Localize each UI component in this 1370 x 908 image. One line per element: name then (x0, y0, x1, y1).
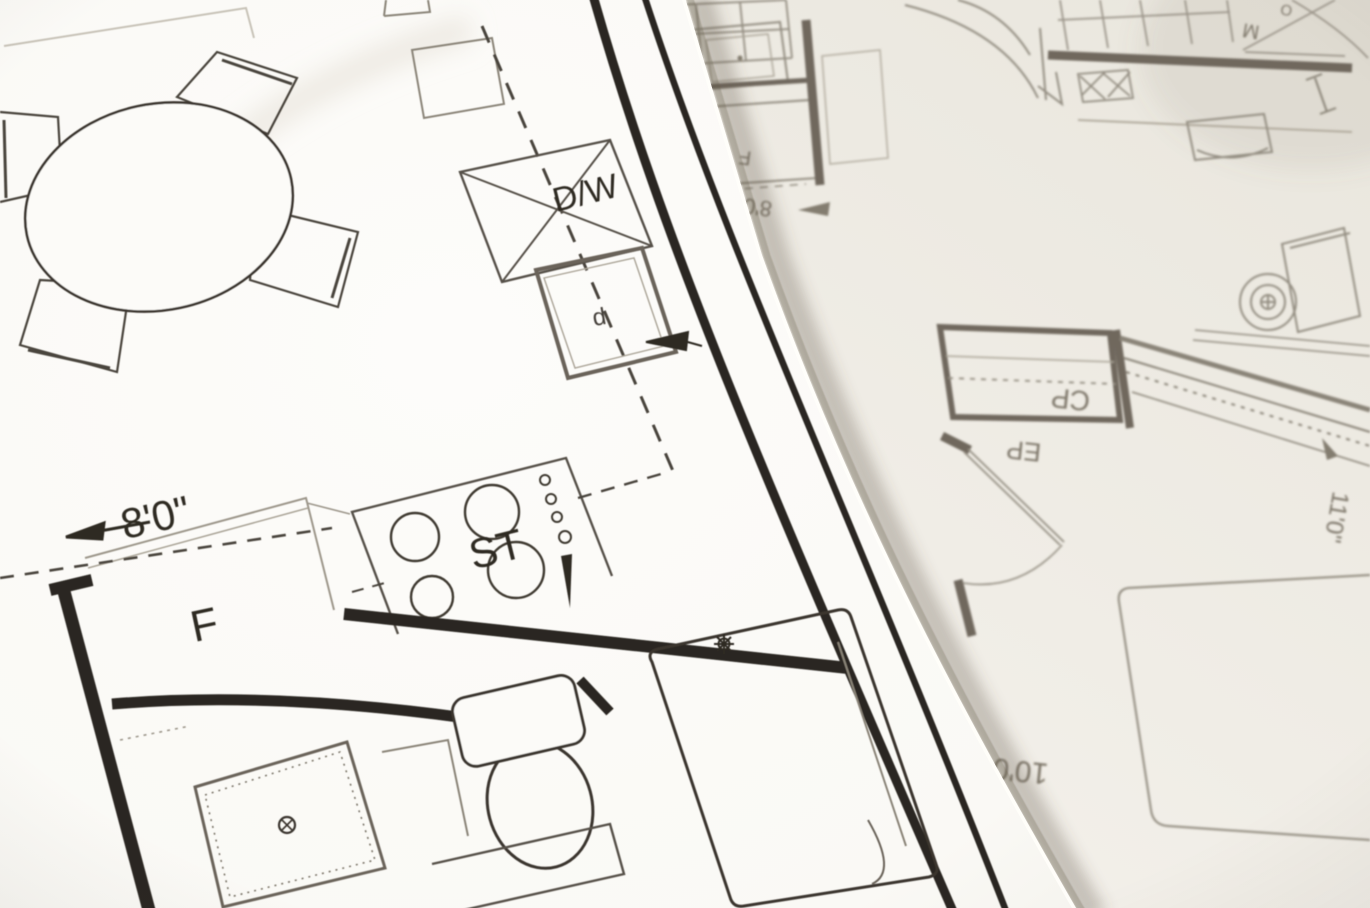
vignette (0, 0, 1370, 908)
photo-floor-plans: F 8'0" M O (0, 0, 1370, 908)
floor-plan-canvas: F 8'0" M O (0, 0, 1370, 908)
